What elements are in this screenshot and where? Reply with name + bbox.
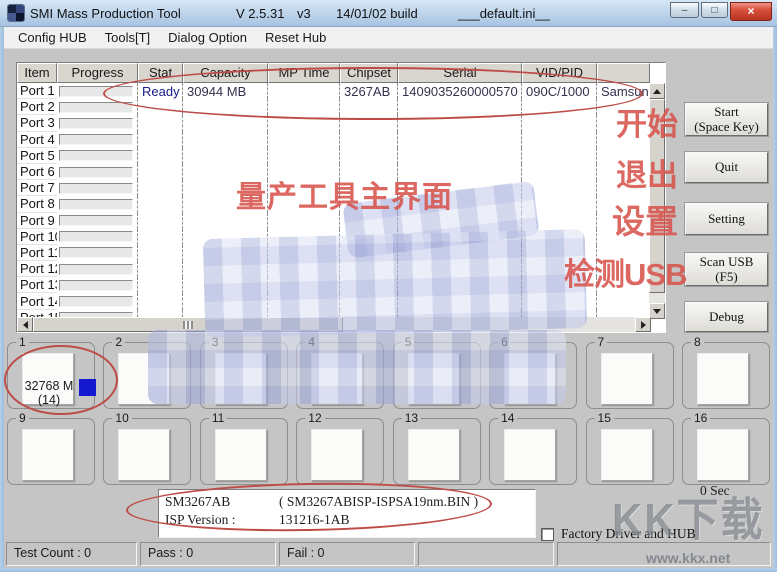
port-label: Port 8: [17, 196, 57, 212]
stat-cell: [138, 261, 183, 277]
vid-pid-cell: [522, 164, 597, 180]
serial-cell: [398, 148, 522, 164]
stat-cell: [138, 180, 183, 196]
window-frame-edge: [773, 27, 777, 572]
slot-number: 1: [16, 335, 29, 349]
slot-number: 8: [691, 335, 704, 349]
port-label: Port 11: [17, 245, 57, 261]
port-label: Port 3: [17, 115, 57, 131]
progress-cell: [57, 132, 138, 148]
serial-cell: [398, 132, 522, 148]
action-button-label: Quit: [715, 160, 738, 175]
window-frame-edge: [0, 27, 4, 572]
maximize-button[interactable]: □: [701, 2, 728, 18]
table-row[interactable]: Port 4: [17, 132, 650, 148]
factory-driver-checkbox[interactable]: [541, 528, 554, 541]
action-button-label: Debug: [709, 310, 744, 325]
site-watermark-logo: KK下载: [612, 484, 765, 550]
progress-cell: [57, 180, 138, 196]
annotation-main-ui: 量产工具主界面: [236, 172, 453, 216]
action-button-label: Setting: [708, 212, 745, 227]
status-segment: Test Count : 0: [6, 542, 137, 566]
menu-item[interactable]: Config HUB: [9, 28, 96, 47]
vid-pid-cell: [522, 115, 597, 131]
vendor-cell: [597, 293, 650, 309]
port-label: Port 9: [17, 213, 57, 229]
capacity-cell: [183, 132, 268, 148]
menu-item[interactable]: Reset Hub: [256, 28, 335, 47]
port-tile: [311, 429, 363, 481]
window-frame-edge: [0, 568, 777, 572]
progress-bar: [59, 150, 133, 161]
progress-cell: [57, 261, 138, 277]
stat-cell: [138, 293, 183, 309]
scroll-left-button[interactable]: [17, 317, 33, 332]
port-tile: [22, 429, 74, 481]
port-slot: 7: [586, 342, 674, 409]
progress-bar: [59, 247, 133, 258]
port-slot: 13: [393, 418, 481, 485]
annotation-setting: 设置: [612, 195, 678, 243]
progress-cell: [57, 164, 138, 180]
slot-number: 7: [595, 335, 608, 349]
mosaic-blur-overlay: [203, 229, 587, 338]
progress-bar: [59, 215, 133, 226]
action-button-label: Scan USB: [700, 255, 754, 270]
table-row[interactable]: Port 5: [17, 148, 650, 164]
scroll-right-button[interactable]: [635, 317, 651, 332]
stat-cell: [138, 132, 183, 148]
progress-cell: [57, 196, 138, 212]
port-label: Port 7: [17, 180, 57, 196]
status-segment: Fail : 0: [279, 542, 415, 566]
stat-cell: [138, 213, 183, 229]
port-label: Port 5: [17, 148, 57, 164]
close-button[interactable]: ×: [730, 2, 772, 21]
stat-cell: [138, 229, 183, 245]
progress-bar: [59, 231, 133, 242]
vid-pid-cell: [522, 132, 597, 148]
port-label: Port 13: [17, 277, 57, 293]
slot-number: 13: [402, 411, 421, 425]
progress-cell: [57, 245, 138, 261]
col-header-progress[interactable]: Progress: [57, 63, 138, 83]
port-slot: 9: [7, 418, 95, 485]
port-tile: [697, 353, 749, 405]
menu-item[interactable]: Tools[T]: [96, 28, 160, 47]
slot-number: 12: [305, 411, 324, 425]
window-title: SMI Mass Production Tool: [30, 6, 181, 21]
action-button-label: Start: [714, 105, 739, 120]
progress-bar: [59, 134, 133, 145]
build-date: 14/01/02 build: [336, 6, 418, 21]
port-label: Port 1: [17, 83, 57, 99]
port-slot: 8: [682, 342, 770, 409]
port-slot: 15: [586, 418, 674, 485]
port-slot: 12: [296, 418, 384, 485]
port-label: Port 4: [17, 132, 57, 148]
highlight-ellipse-slot: [4, 345, 118, 415]
app-window: SMI Mass Production Tool V 2.5.31 v3 14/…: [0, 0, 777, 572]
ini-file-name: ___default.ini__: [458, 6, 550, 21]
action-button-sublabel: (F5): [715, 270, 737, 285]
stat-cell: [138, 196, 183, 212]
stat-cell: [138, 164, 183, 180]
port-slot: 10: [103, 418, 191, 485]
scroll-down-button[interactable]: [649, 303, 665, 319]
action-button[interactable]: Debug: [685, 302, 768, 332]
action-button[interactable]: Setting: [685, 203, 768, 235]
app-version: V 2.5.31: [236, 6, 284, 21]
scroll-up-button[interactable]: [649, 83, 665, 99]
slot-number: 9: [16, 411, 29, 425]
stat-cell: [138, 245, 183, 261]
slot-number: 10: [112, 411, 131, 425]
progress-bar: [59, 296, 133, 307]
action-button[interactable]: Scan USB (F5): [685, 253, 768, 286]
progress-cell: [57, 115, 138, 131]
mp-time-cell: [268, 132, 340, 148]
progress-bar: [59, 118, 133, 129]
app-logo-icon: [8, 5, 24, 21]
menu-item[interactable]: Dialog Option: [159, 28, 256, 47]
slot-number: 11: [209, 411, 227, 425]
progress-cell: [57, 277, 138, 293]
progress-cell: [57, 229, 138, 245]
slot-number: 16: [691, 411, 710, 425]
port-label: Port 14: [17, 293, 57, 309]
port-label: Port 2: [17, 99, 57, 115]
action-button[interactable]: Start (Space Key): [685, 103, 768, 136]
port-slot: 16: [682, 418, 770, 485]
capacity-cell: [183, 148, 268, 164]
status-segment: Pass : 0: [140, 542, 276, 566]
titlebar[interactable]: SMI Mass Production Tool V 2.5.31 v3 14/…: [0, 0, 777, 27]
menu-bar: Config HUBTools[T]Dialog OptionReset Hub: [4, 27, 773, 49]
vid-pid-cell: [522, 148, 597, 164]
stat-cell: [138, 148, 183, 164]
progress-bar: [59, 280, 133, 291]
highlight-ellipse-row: [103, 67, 643, 120]
port-label: Port 10: [17, 229, 57, 245]
stat-cell: [138, 115, 183, 131]
port-label: Port 6: [17, 164, 57, 180]
progress-cell: [57, 148, 138, 164]
annotation-scan-usb: 检测USB: [564, 249, 686, 294]
annotation-quit: 退出: [616, 150, 678, 195]
port-tile: [697, 429, 749, 481]
col-header-item[interactable]: Item: [17, 63, 57, 83]
window-controls: – □ ×: [670, 2, 772, 21]
capacity-cell: [183, 115, 268, 131]
progress-bar: [59, 199, 133, 210]
app-version-tag: v3: [297, 6, 311, 21]
port-tile: [504, 429, 556, 481]
progress-bar: [59, 167, 133, 178]
port-tile: [215, 429, 267, 481]
progress-bar: [59, 183, 133, 194]
status-segment: [418, 542, 554, 566]
chipset-cell: [340, 148, 398, 164]
port-slot: 14: [489, 418, 577, 485]
action-button-sublabel: (Space Key): [694, 120, 759, 135]
slot-number: 2: [112, 335, 125, 349]
slot-number: 15: [595, 411, 614, 425]
port-tile: [118, 429, 170, 481]
progress-cell: [57, 213, 138, 229]
stat-cell: [138, 277, 183, 293]
progress-bar: [59, 264, 133, 275]
action-button[interactable]: Quit: [685, 152, 768, 183]
port-tile: [601, 429, 653, 481]
port-tile: [601, 353, 653, 405]
mp-time-cell: [268, 148, 340, 164]
minimize-button[interactable]: –: [670, 2, 699, 18]
progress-cell: [57, 293, 138, 309]
chipset-cell: [340, 132, 398, 148]
port-slot: 11: [200, 418, 288, 485]
mosaic-blur-overlay: [148, 330, 566, 404]
port-label: Port 12: [17, 261, 57, 277]
slot-number: 14: [498, 411, 517, 425]
site-watermark-url: www.kkx.net: [646, 550, 730, 566]
annotation-start: 开始: [616, 99, 678, 144]
port-tile: [408, 429, 460, 481]
